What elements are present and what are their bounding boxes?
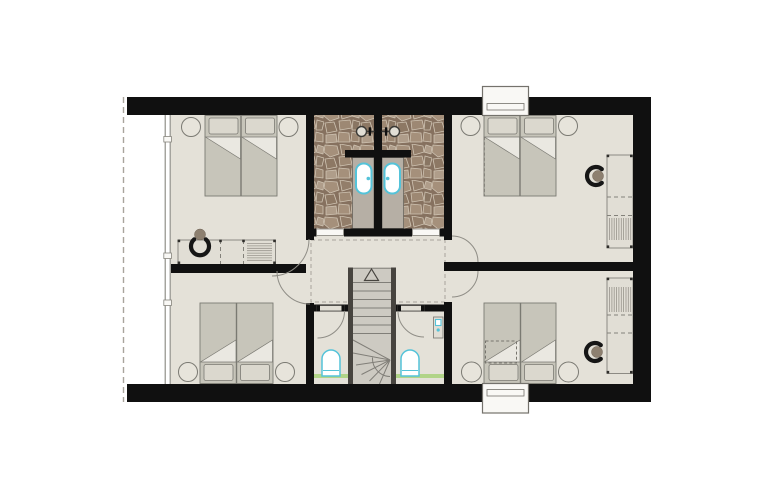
chair-seat — [592, 347, 603, 358]
shower-room-right — [382, 158, 404, 229]
wall-bottom — [127, 384, 651, 402]
stair-stringer — [391, 268, 396, 385]
window-dormer-top — [483, 87, 529, 116]
nightstand — [461, 117, 480, 136]
double-bed — [484, 303, 556, 384]
wc-left — [322, 350, 340, 376]
pillow — [525, 118, 554, 134]
glass-facade — [164, 115, 172, 384]
double-bed — [484, 116, 556, 197]
nightstand — [276, 363, 295, 382]
basin-drain — [437, 328, 440, 331]
toilet — [401, 350, 419, 376]
hand-basin — [436, 320, 442, 326]
wall-bath-bottom — [344, 229, 412, 237]
wall-divider-right — [444, 262, 633, 271]
chair-seat — [195, 229, 206, 240]
mullion — [164, 253, 172, 259]
nightstand — [559, 117, 578, 136]
wall-bath-right — [444, 115, 452, 240]
toilet — [322, 350, 340, 376]
wall-divider-left — [171, 264, 306, 273]
pillow — [246, 118, 275, 134]
double-bed — [205, 116, 277, 197]
desk-top — [607, 155, 633, 248]
stair-flight — [353, 268, 391, 385]
wall-right — [633, 97, 651, 402]
shower-valve — [369, 127, 371, 135]
pillow — [209, 118, 238, 134]
sliding-door-left-bath — [317, 229, 344, 236]
window-dormer-bottom — [483, 384, 529, 414]
basin-drain — [367, 177, 371, 181]
mullion — [164, 137, 172, 143]
wall-shower-partition — [345, 150, 374, 158]
nightstand — [182, 118, 201, 137]
chair-seat — [593, 171, 604, 182]
pillow — [488, 118, 517, 134]
stair-stringer — [348, 268, 353, 385]
wall-bath-left — [306, 115, 314, 240]
double-bed — [200, 303, 273, 384]
nightstand — [279, 118, 298, 137]
basin-drain — [386, 177, 390, 181]
floor-plan-canvas — [0, 0, 771, 500]
pillow — [241, 365, 270, 381]
pillow — [204, 365, 233, 381]
mullion — [164, 300, 172, 306]
sliding-door-right-bath — [413, 229, 440, 236]
desk — [607, 155, 633, 248]
shower-room-left — [353, 158, 375, 229]
floor-plan-page — [0, 0, 771, 500]
wall-shower-partition — [382, 150, 411, 158]
wall-bath-center — [374, 115, 382, 237]
wall-wc-right-side — [444, 302, 452, 384]
wall-wc-left-side — [306, 303, 314, 384]
nightstand — [559, 362, 579, 382]
shower-head-icon — [357, 127, 367, 137]
pillow — [489, 365, 518, 381]
nightstand — [462, 362, 482, 382]
wall-bath-bottom — [306, 229, 317, 237]
wall-bath-bottom — [440, 229, 453, 237]
desk-top — [607, 278, 633, 374]
desk — [607, 278, 633, 374]
door-leaf — [398, 306, 424, 312]
wall-top — [127, 97, 651, 115]
staircase — [348, 268, 396, 385]
door-leaf — [317, 306, 345, 312]
pillow — [525, 365, 554, 381]
nightstand — [179, 363, 198, 382]
shower-valve — [385, 127, 387, 135]
shower-head-icon — [390, 127, 400, 137]
